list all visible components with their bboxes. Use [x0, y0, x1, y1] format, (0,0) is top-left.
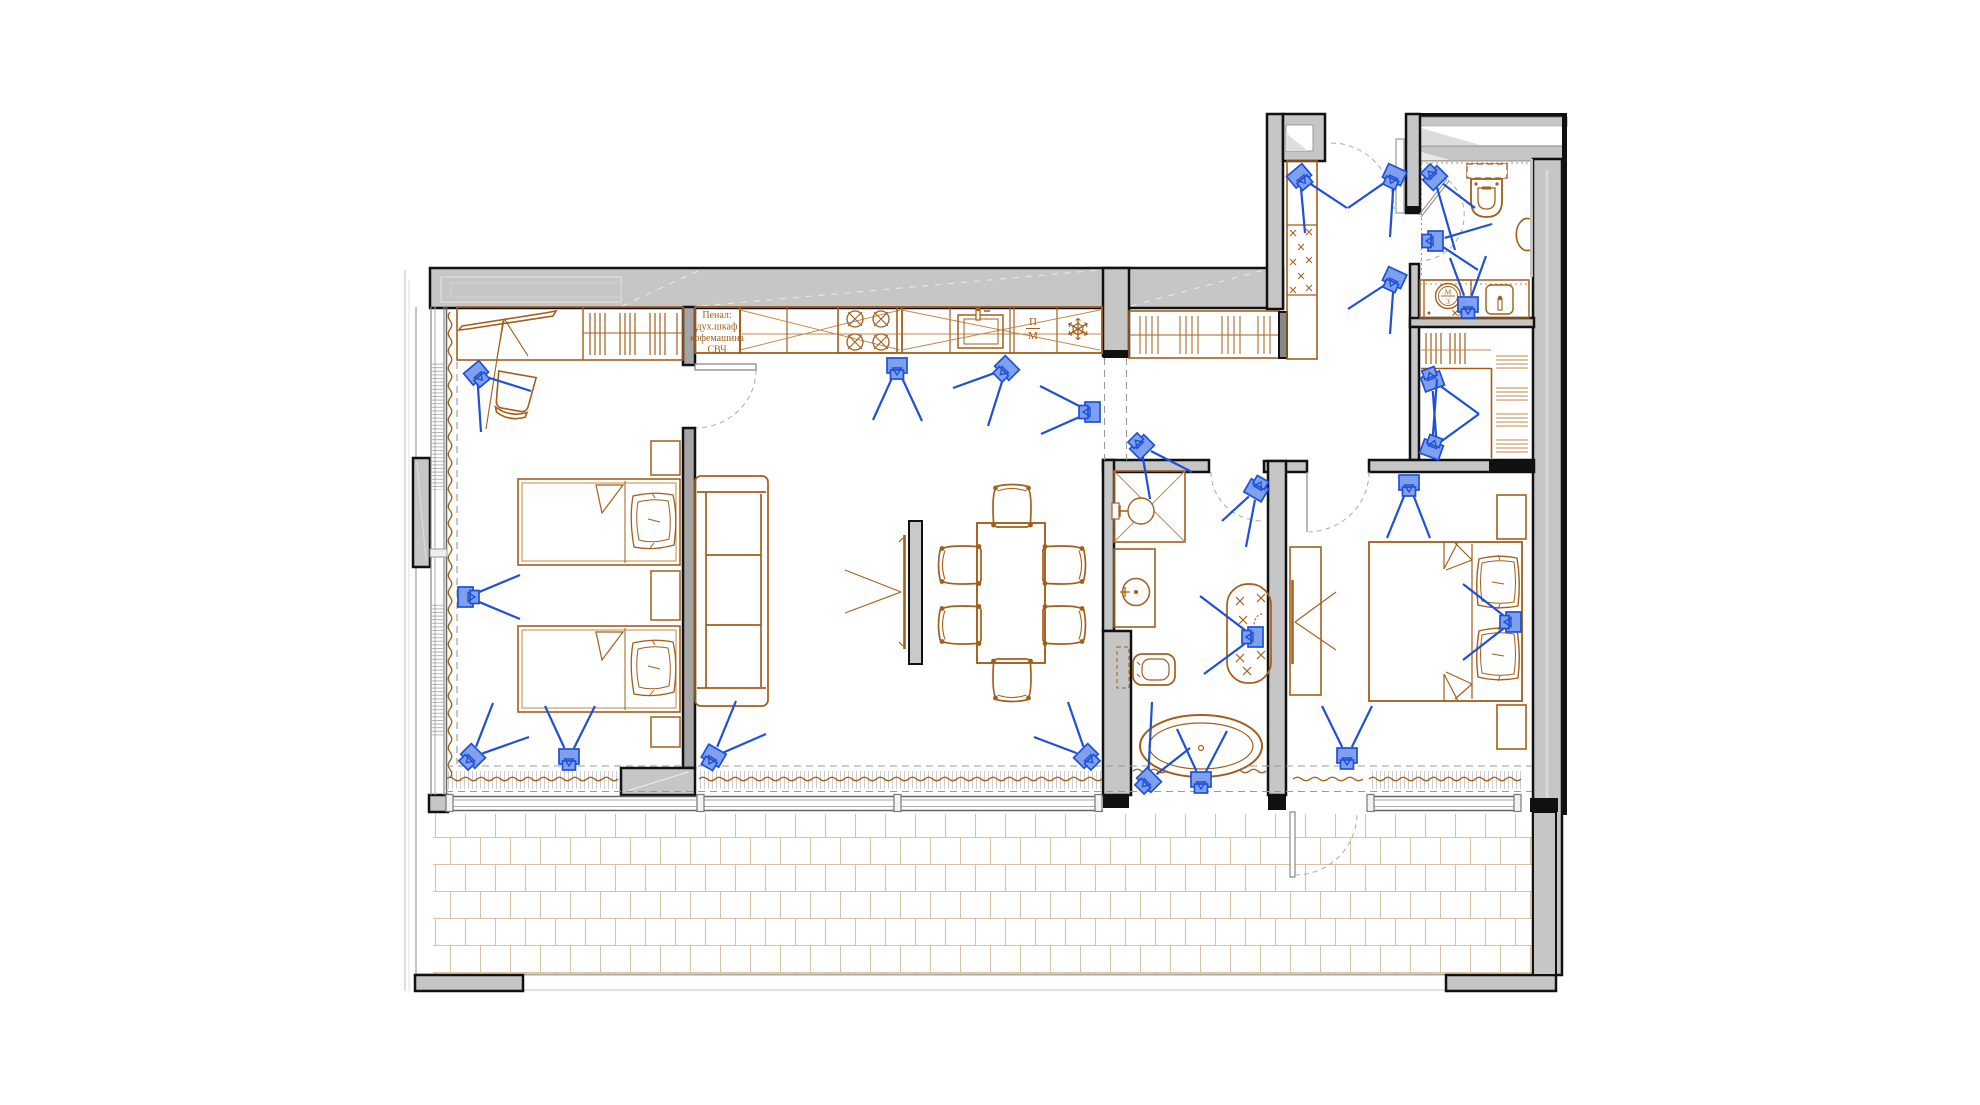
svg-text:М: М [1028, 330, 1038, 342]
svg-text:З: З [1446, 297, 1450, 306]
svg-text:П: П [1029, 316, 1037, 328]
svg-text:СВЧ: СВЧ [707, 345, 727, 356]
svg-text:Пенал:: Пенал: [702, 310, 731, 321]
svg-text:дух.шкаф: дух.шкаф [697, 322, 738, 333]
svg-text:кофемашина: кофемашина [690, 333, 744, 344]
svg-text:М: М [1445, 288, 1452, 297]
